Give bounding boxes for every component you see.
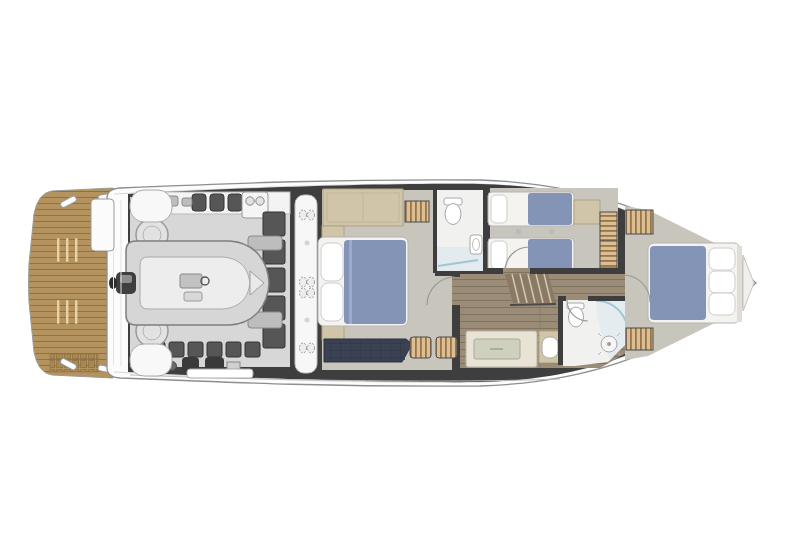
day-head-left-wall [558, 301, 563, 365]
master-bed [318, 237, 408, 326]
duvet [528, 193, 572, 225]
washbasin [470, 235, 482, 254]
reading-light-icon [549, 229, 554, 234]
staircase: Companionway staircase [505, 274, 556, 305]
rattan-stool [436, 337, 457, 358]
floor-plan-canvas: Teak swim platform Hull outline Engine r… [0, 0, 800, 533]
duvet [650, 246, 706, 320]
vip-cabin: VIP bow cabin [625, 206, 754, 360]
rattan-stool [626, 328, 653, 350]
sideboard [466, 331, 537, 367]
master-sofa-tufting [327, 341, 405, 360]
twin-bottom-wall [487, 268, 503, 274]
rattan-cabinet [626, 210, 653, 234]
pillow [321, 243, 343, 281]
toilet [444, 198, 462, 225]
stair-handrail [510, 304, 556, 305]
duvet [528, 239, 572, 271]
door-threshold [452, 277, 461, 305]
counter-item [182, 198, 192, 206]
rattan-stool [410, 337, 431, 358]
reading-light-icon [516, 229, 521, 234]
engine-block [228, 194, 242, 211]
day-head-top-wall [588, 296, 630, 301]
headboard [737, 246, 742, 322]
twin-bottom-wall [530, 268, 618, 274]
rattan-cabinet [405, 201, 429, 222]
pillow [491, 241, 507, 269]
duvet [344, 240, 406, 324]
machinery-unit [248, 236, 282, 250]
gauge-icon [246, 197, 254, 205]
pillow [709, 248, 735, 270]
engine-block [210, 194, 224, 211]
garage-side-seat [130, 344, 172, 376]
door-threshold [503, 268, 530, 275]
pillow [491, 195, 507, 223]
foot-cabinet [574, 200, 600, 224]
vessel-sink [542, 337, 558, 358]
pillow [321, 283, 343, 321]
boarding-ladder [187, 369, 253, 378]
vip-bed [648, 243, 742, 323]
pillow [709, 271, 735, 293]
twin-bed-2 [488, 238, 574, 272]
twin-bed-1 [488, 192, 574, 226]
garage-side-seat [130, 190, 172, 222]
transom-locker [91, 199, 114, 251]
vanity-unit [539, 331, 561, 363]
pillow [709, 293, 735, 315]
bow-filler-cushion [743, 255, 754, 311]
yacht-floor-plan: Teak swim platform Hull outline Engine r… [0, 0, 800, 533]
engine-block [192, 194, 206, 211]
technical-passage: Technical passage with deck hatches [295, 195, 317, 373]
gauge-icon [256, 197, 264, 205]
day-head-top-wall [558, 296, 566, 301]
duvet-fold [349, 240, 352, 324]
